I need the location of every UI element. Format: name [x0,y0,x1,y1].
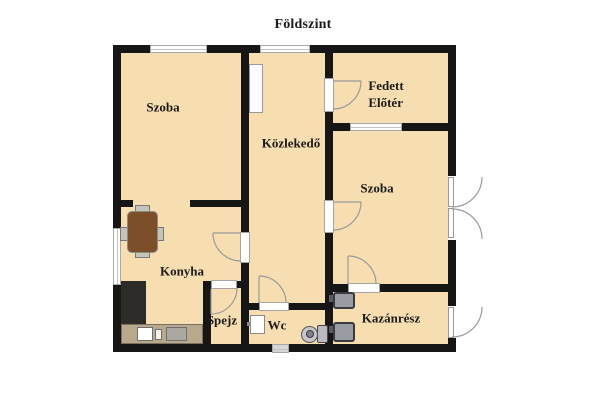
wall-szoba1-konyha-stub [121,200,133,207]
cabinet [249,64,263,113]
double-door-leaf-top [448,177,454,207]
kazan-door-leaf [448,307,454,338]
wall-outer-left [113,45,121,352]
kitchen-worktop [121,324,203,344]
door-swing-arc [452,307,482,337]
vent-wc-bottom [272,344,289,353]
wall-szoba1-konyha [190,200,249,207]
wall-eloter-szoba2-right [402,123,448,131]
room-label-wc: Wc [268,318,287,333]
boiler [333,292,355,309]
kitchen-counter [121,281,146,324]
room-label-fedett-eloter: Fedett Előtér [368,77,403,111]
draining-board [166,327,187,341]
room-label-spejz: Spejz [207,313,237,328]
wall-szoba1-kozlekedo [241,53,249,200]
wall-konyha-wc-lower [241,263,249,344]
boiler [333,322,355,342]
window-szoba1-top [150,45,207,53]
double-door-leaf-bottom [448,208,454,238]
wall-wc-top-right [289,303,333,310]
door-gap-spejz [211,280,237,289]
wall-konyha-kozlekedo-upper [241,207,249,232]
window-eloter-szoba2 [350,123,402,131]
room-label-konyha: Konyha [160,264,204,279]
window-kozlekedo-top [260,45,310,53]
plan-title: Földszint [274,17,331,33]
door-gap-szoba2 [324,200,334,233]
kitchen-sink [137,327,153,341]
room-label-kazanresz: Kazánrész [362,311,420,326]
wall-kozlekedo-eloter-upper [325,53,333,78]
floor-plan: Földszint [0,0,600,420]
room-label-szoba2: Szoba [360,181,393,196]
toilet-tank [317,325,328,343]
room-label-kozlekedo: Közlekedő [262,136,321,151]
door-gap-wc [259,302,289,311]
wall-szoba2-kazan-left [333,284,348,292]
toilet-bowl-inner [306,330,314,338]
double-door-swing-arc [452,209,482,239]
wall-wc-top-left [249,303,259,310]
wall-kozlekedo-szoba2-mid [325,112,333,200]
dining-table [127,211,158,253]
door-gap-konyha [240,232,250,263]
door-gap-eloter [324,78,334,112]
faucet-icon [155,329,162,340]
hand-basin [250,315,265,334]
room-label-szoba1: Szoba [146,100,179,115]
double-door-swing-arc [452,177,482,207]
wall-spejz-top-stub [237,281,249,288]
wall-eloter-szoba2-left [333,123,350,131]
wall-szoba2-kazan-right [380,284,448,292]
